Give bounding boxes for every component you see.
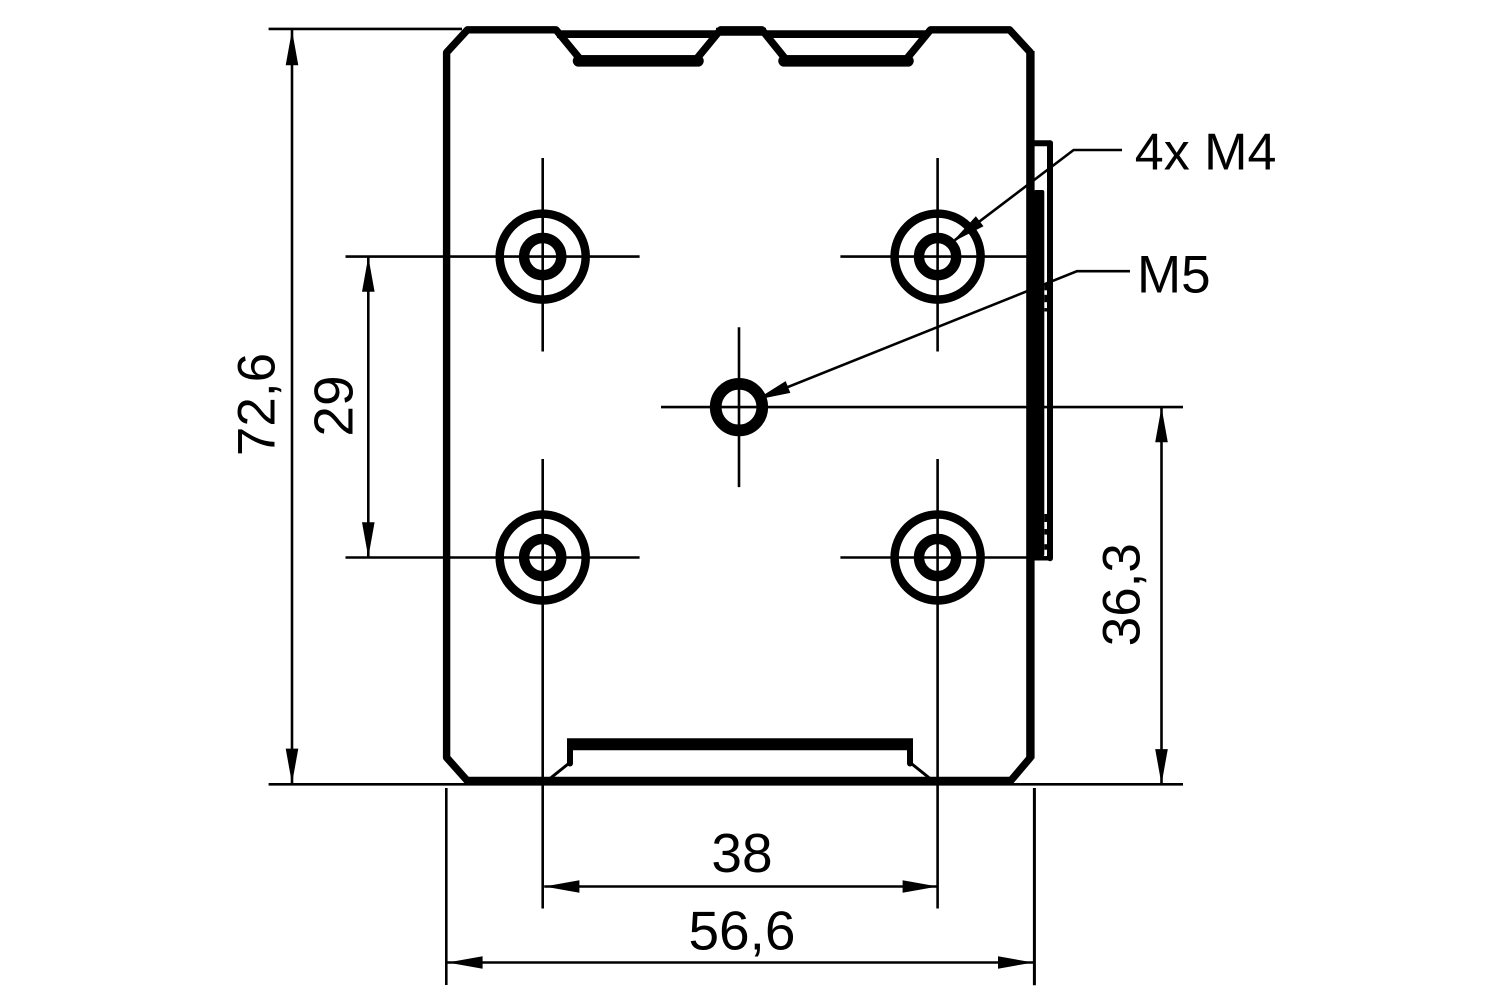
svg-text:56,6: 56,6 <box>688 900 795 962</box>
svg-text:72,6: 72,6 <box>228 353 287 456</box>
svg-text:38: 38 <box>711 822 772 884</box>
svg-text:29: 29 <box>302 375 364 436</box>
svg-text:M5: M5 <box>1137 245 1211 304</box>
svg-text:36,3: 36,3 <box>1093 543 1152 646</box>
svg-text:4x M4: 4x M4 <box>1135 123 1277 181</box>
